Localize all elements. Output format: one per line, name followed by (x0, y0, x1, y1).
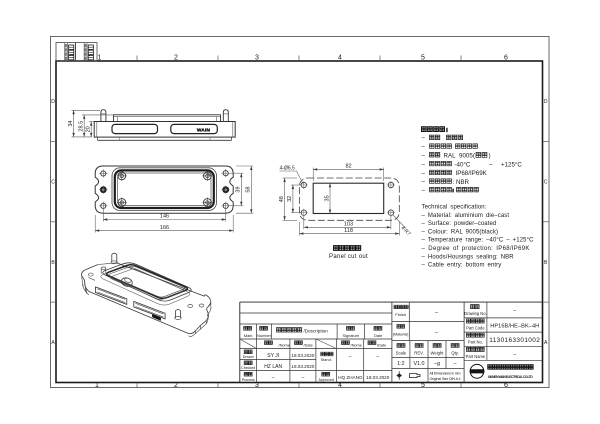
svg-text:1: 1 (95, 382, 99, 389)
svg-text:Weight: Weight (431, 350, 445, 355)
svg-text:82: 82 (345, 164, 351, 170)
svg-text:C: C (51, 180, 55, 186)
svg-text:–: – (454, 361, 457, 367)
svg-text:–: – (422, 171, 426, 177)
svg-text:RAL 9005: RAL 9005 (444, 153, 474, 160)
svg-text:: NBR: : NBR (453, 179, 470, 186)
svg-text:REV.: REV. (414, 350, 423, 355)
svg-text:4-Ø6.5: 4-Ø6.5 (280, 166, 296, 172)
svg-text:(Material): (Material) (393, 333, 409, 337)
svg-text:4: 4 (338, 382, 342, 389)
svg-text:–: – (422, 144, 426, 150)
svg-text:– Hoods/Housings sealing: NBR: – Hoods/Housings sealing: NBR (422, 255, 515, 261)
svg-text:– Degree of protection: IP68/I: – Degree of protection: IP68/IP69K (422, 246, 530, 252)
svg-text:118: 118 (344, 228, 353, 234)
svg-text:Stand.: Stand. (321, 357, 332, 362)
svg-text:–: – (302, 375, 305, 381)
svg-text:XIAMEN WAIN ELECTRICAL CO.LTD: XIAMEN WAIN ELECTRICAL CO.LTD (488, 375, 534, 379)
svg-text:–g: –g (434, 361, 440, 367)
svg-text:C: C (544, 180, 548, 186)
svg-text:): ) (489, 153, 491, 160)
svg-text:/Date: /Date (304, 343, 313, 348)
svg-text:/Description: /Description (304, 329, 329, 334)
svg-text:35: 35 (324, 195, 330, 201)
svg-text:/Nome: /Nome (279, 343, 290, 348)
svg-text:Drawing No.: Drawing No. (464, 311, 487, 316)
svg-text:WAIN: WAIN (471, 370, 483, 374)
svg-text:4-R7: 4-R7 (400, 225, 412, 237)
svg-text:HQ ZHANG: HQ ZHANG (338, 375, 363, 380)
svg-text:–: – (422, 162, 426, 168)
svg-text:5: 5 (421, 55, 425, 62)
svg-text:A: A (51, 340, 55, 346)
svg-text:39: 39 (236, 186, 242, 192)
svg-text:–: – (513, 308, 517, 314)
svg-text:–: – (435, 310, 439, 316)
svg-text:–: – (272, 375, 275, 381)
svg-text:Qty.: Qty. (451, 350, 458, 355)
svg-text:Mark: Mark (244, 333, 253, 338)
svg-text:32: 32 (287, 196, 293, 202)
svg-text:B: B (544, 260, 548, 266)
svg-text:D: D (544, 99, 548, 105)
svg-text:SY JI: SY JI (267, 353, 279, 359)
svg-text:48: 48 (279, 196, 285, 202)
svg-text:1130163301002: 1130163301002 (489, 337, 540, 344)
svg-text:18.03.2020: 18.03.2020 (291, 353, 314, 358)
svg-text:Original Size DIN A 4: Original Size DIN A 4 (430, 377, 461, 381)
svg-text:– Material: aluminium die–cast: – Material: aluminium die–cast (422, 213, 510, 219)
svg-text:–: – (376, 354, 379, 360)
svg-text:Part Code: Part Code (466, 325, 485, 330)
svg-text:/Nome: /Nome (351, 343, 362, 348)
svg-text:34: 34 (68, 121, 74, 127)
svg-text:–: – (349, 354, 352, 360)
svg-text:166: 166 (160, 225, 169, 231)
svg-text:2: 2 (174, 55, 178, 62)
svg-text:Signature: Signature (342, 333, 359, 338)
svg-text:103: 103 (344, 222, 353, 228)
svg-text:V1.0: V1.0 (413, 361, 424, 367)
svg-text:58: 58 (246, 187, 252, 193)
svg-text:HP16B/HE–BK–4H: HP16B/HE–BK–4H (490, 324, 539, 330)
svg-text:–: – (422, 188, 426, 194)
svg-text:146: 146 (160, 214, 169, 220)
svg-text:– Temperature range: –40°C – +: – Temperature range: –40°C – +125°C (422, 238, 535, 244)
svg-text:1:2: 1:2 (397, 361, 405, 367)
svg-text:– Colour: RAL 9005(black): – Colour: RAL 9005(black) (422, 229, 499, 235)
svg-text:20: 20 (85, 126, 91, 132)
svg-text:18.03.2020: 18.03.2020 (366, 375, 389, 380)
svg-text:/Date: /Date (377, 343, 386, 348)
svg-text:3: 3 (255, 55, 259, 62)
svg-text:Approved: Approved (319, 378, 334, 382)
svg-text:6: 6 (504, 382, 508, 389)
svg-text:–: – (435, 330, 439, 336)
svg-text:–: – (489, 161, 493, 168)
svg-text:–: – (422, 136, 426, 142)
svg-text:–: – (422, 179, 426, 185)
svg-text:– Surface: powder–coated: – Surface: powder–coated (422, 221, 497, 227)
svg-text:– Cable entry: bottom entry: – Cable entry: bottom entry (422, 263, 502, 269)
svg-text:B: B (51, 260, 55, 266)
svg-text:(: ( (473, 153, 476, 160)
svg-text:Number: Number (257, 333, 272, 338)
svg-text:All Dimensions in mm: All Dimensions in mm (430, 372, 461, 376)
svg-text:Technical specification:: Technical specification: (422, 204, 487, 210)
svg-text:+125°C: +125°C (501, 161, 522, 168)
svg-text:Date: Date (374, 333, 382, 338)
svg-text:A: A (544, 340, 548, 346)
svg-text:Part Name: Part Name (466, 354, 486, 359)
svg-text:5: 5 (421, 382, 425, 389)
svg-text:D: D (51, 99, 55, 105)
svg-text:1: 1 (98, 55, 102, 62)
svg-text:28.5: 28.5 (78, 121, 84, 132)
svg-text:–: – (513, 352, 517, 358)
svg-text:Finish: Finish (395, 312, 406, 317)
svg-text:2: 2 (174, 382, 178, 389)
svg-text:Scale: Scale (396, 350, 407, 355)
svg-text:Process: Process (242, 378, 255, 382)
svg-text:–: – (422, 153, 426, 159)
svg-text:Panel cut out: Panel cut out (329, 254, 368, 260)
svg-text:WAIN: WAIN (197, 127, 211, 133)
svg-text:6: 6 (504, 55, 508, 62)
svg-text:-40°C: -40°C (455, 161, 471, 168)
svg-text:3: 3 (255, 382, 259, 389)
svg-text:18.03.2020: 18.03.2020 (291, 364, 314, 369)
svg-text:4: 4 (338, 55, 342, 62)
svg-text:Part No.: Part No. (468, 340, 483, 345)
svg-text:Drawn: Drawn (243, 354, 254, 359)
svg-text:HZ LAN: HZ LAN (264, 364, 282, 370)
svg-text:Checked: Checked (241, 366, 255, 370)
svg-text:IP68/IP69K: IP68/IP69K (456, 170, 488, 177)
